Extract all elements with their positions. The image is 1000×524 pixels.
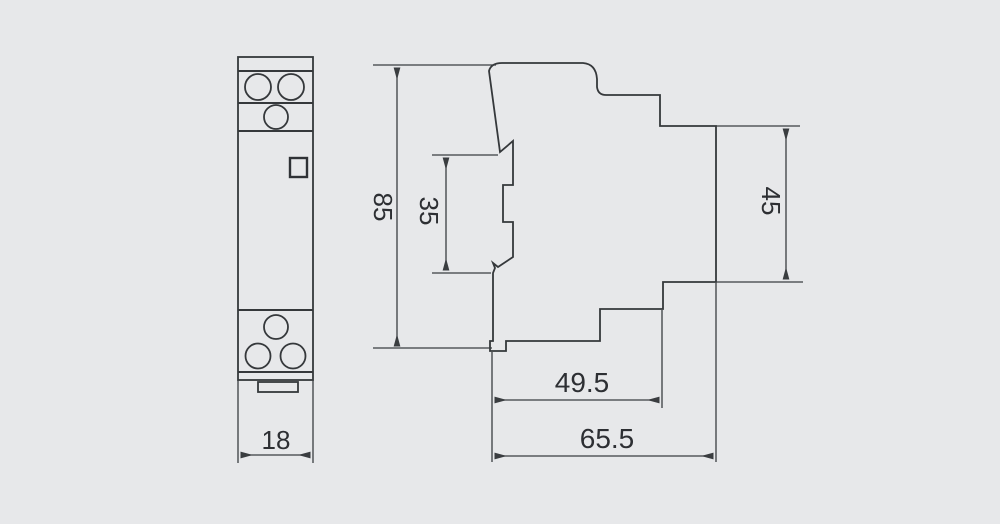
dim-label-overall-height: 85 [368, 193, 398, 222]
dimension-rail-slot: 35 [414, 155, 498, 273]
din-clip-foot [258, 382, 298, 392]
side-view: 85 35 45 49.5 [368, 63, 803, 462]
dim-label-overall-depth: 65.5 [580, 423, 635, 454]
front-view: 18 [238, 57, 313, 463]
technical-drawing: 18 85 35 [0, 0, 1000, 524]
dim-label-upper-depth: 45 [756, 187, 786, 216]
top-terminal-circles [245, 74, 304, 129]
dim-label-front-width: 18 [262, 425, 291, 455]
indicator-window [290, 158, 307, 177]
dimension-upper-depth: 45 [716, 126, 803, 282]
front-panel-dividers [238, 71, 313, 372]
dimension-diagram-canvas: 18 85 35 [0, 0, 1000, 524]
dimension-lower-depth: 49.5 [492, 310, 662, 462]
dim-label-rail-slot: 35 [414, 197, 444, 226]
bottom-terminal-circles [246, 315, 306, 369]
dim-label-lower-depth: 49.5 [555, 367, 610, 398]
side-profile-outline [489, 63, 716, 351]
